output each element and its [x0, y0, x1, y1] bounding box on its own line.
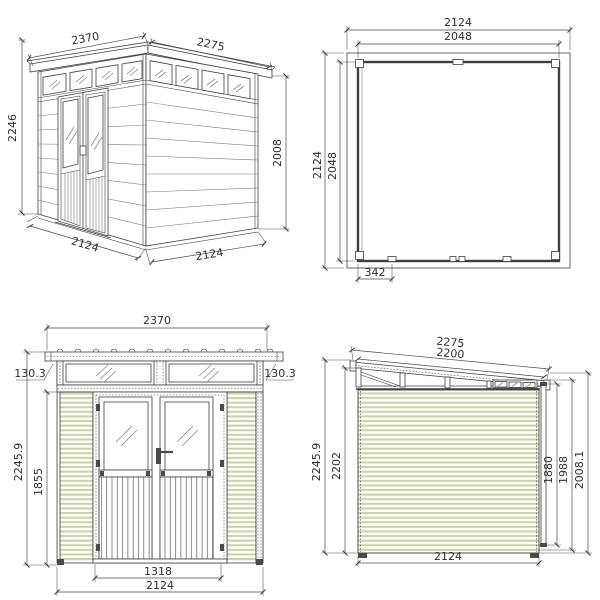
- dim-plan-outer-width: 2124: [444, 16, 472, 29]
- plan-dimensions: 2124 2048 2124 2048 342: [311, 16, 570, 283]
- dim-side-height-front-wall: 2202: [330, 452, 343, 480]
- dim-side-base-depth: 2124: [434, 550, 462, 563]
- front-clerestory: [57, 361, 263, 392]
- dim-front-wall-width: 2124: [146, 579, 174, 592]
- dim-side-height-total: 2245.9: [310, 443, 323, 482]
- dim-side-height-rear-mid: 1988: [557, 456, 570, 484]
- dim-front-height-wall: 1855: [32, 468, 45, 496]
- door-handle: [80, 146, 86, 155]
- dim-perspective-roof-front: 2370: [70, 30, 100, 48]
- perspective-view: 2370 2275 2246 2008 2124 2124: [0, 0, 300, 300]
- dim-plan-outer-depth: 2124: [311, 151, 324, 179]
- front-siding-right: [227, 392, 256, 563]
- dim-perspective-roof-side: 2275: [196, 35, 226, 54]
- front-roof: [45, 349, 283, 361]
- front-door-lock: [156, 448, 161, 464]
- drawing-sheet: 2370 2275 2246 2008 2124 2124 2124: [0, 0, 600, 600]
- dim-plan-inner-width: 2048: [444, 30, 472, 43]
- dim-plan-inner-depth: 2048: [326, 152, 339, 180]
- front-doors: [93, 392, 227, 563]
- perspective-doors: [55, 88, 111, 238]
- dim-perspective-base-front: 2124: [70, 234, 101, 254]
- dim-front-door-width: 1318: [144, 565, 172, 578]
- dim-front-height-total: 2245.9: [12, 443, 25, 482]
- dim-side-height-rear-wall: 2008.1: [573, 451, 586, 490]
- dim-front-overhang-right: 130.3: [264, 367, 296, 380]
- front-elevation-view: 2370 130.3 130.3 2245.9 1855 1318 2124: [0, 300, 300, 600]
- dim-perspective-height-right: 2008: [271, 139, 284, 167]
- perspective-side-face: [146, 54, 258, 246]
- plan-outline: [347, 53, 570, 268]
- side-elevation-view: 2275 2200 2245.9 2202 1880 1988 2008.1 2…: [300, 300, 600, 600]
- side-siding: [358, 390, 539, 553]
- dim-perspective-base-side: 2124: [195, 246, 225, 263]
- side-wall: [358, 382, 547, 558]
- dim-side-roof-inner: 2200: [436, 346, 465, 362]
- dim-plan-door-offset: 342: [365, 266, 386, 279]
- floor-plan-view: 2124 2048 2124 2048 342: [300, 0, 600, 300]
- front-siding-left: [60, 392, 93, 563]
- dim-side-height-rear-clear: 1880: [542, 456, 555, 484]
- plan-top-connector: [453, 60, 463, 65]
- dim-front-overhang-left: 130.3: [14, 367, 46, 380]
- dim-front-roof-width: 2370: [143, 314, 171, 327]
- dim-perspective-height-left: 2246: [6, 114, 19, 142]
